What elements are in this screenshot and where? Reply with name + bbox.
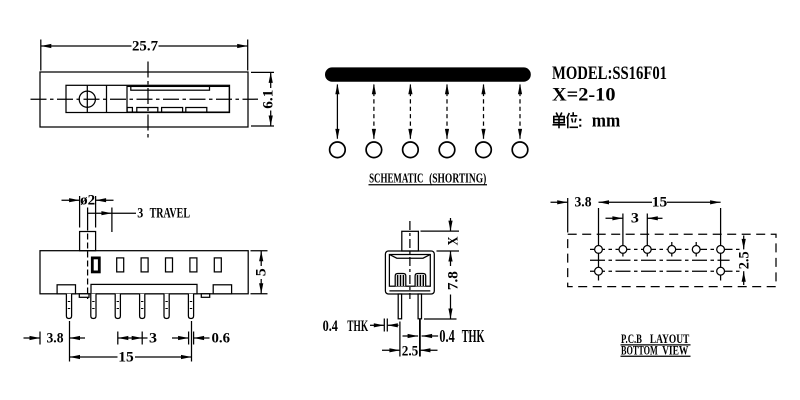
svg-text:0.4: 0.4 xyxy=(323,318,338,335)
svg-text:3: 3 xyxy=(137,206,143,222)
svg-text:15: 15 xyxy=(118,349,134,365)
svg-text:BOTTOM: BOTTOM xyxy=(621,344,658,358)
svg-text:TRAVEL: TRAVEL xyxy=(150,206,190,222)
svg-text:VIEW: VIEW xyxy=(662,344,688,358)
svg-text:THK: THK xyxy=(462,326,485,346)
svg-text:ø2: ø2 xyxy=(80,193,95,209)
svg-text:X: X xyxy=(445,236,461,245)
svg-text:0.6: 0.6 xyxy=(212,330,231,346)
svg-text:3: 3 xyxy=(149,330,157,346)
svg-text:MODEL:SS16F01: MODEL:SS16F01 xyxy=(552,64,667,84)
svg-text:3: 3 xyxy=(631,211,639,227)
svg-text:3.8: 3.8 xyxy=(47,330,64,346)
svg-text:X=2-10: X=2-10 xyxy=(552,86,616,106)
svg-text:5: 5 xyxy=(254,268,270,276)
svg-text:3.8: 3.8 xyxy=(575,195,592,211)
svg-text:THK: THK xyxy=(347,318,368,335)
svg-text:25.7: 25.7 xyxy=(132,38,158,54)
svg-text:6.1: 6.1 xyxy=(260,90,276,109)
svg-text:0.4: 0.4 xyxy=(439,326,454,346)
svg-text:2.5: 2.5 xyxy=(402,343,419,359)
svg-text:mm: mm xyxy=(592,110,621,131)
svg-text:2.5: 2.5 xyxy=(737,251,753,269)
svg-text:15: 15 xyxy=(652,195,668,211)
svg-text:7.8: 7.8 xyxy=(445,271,461,290)
